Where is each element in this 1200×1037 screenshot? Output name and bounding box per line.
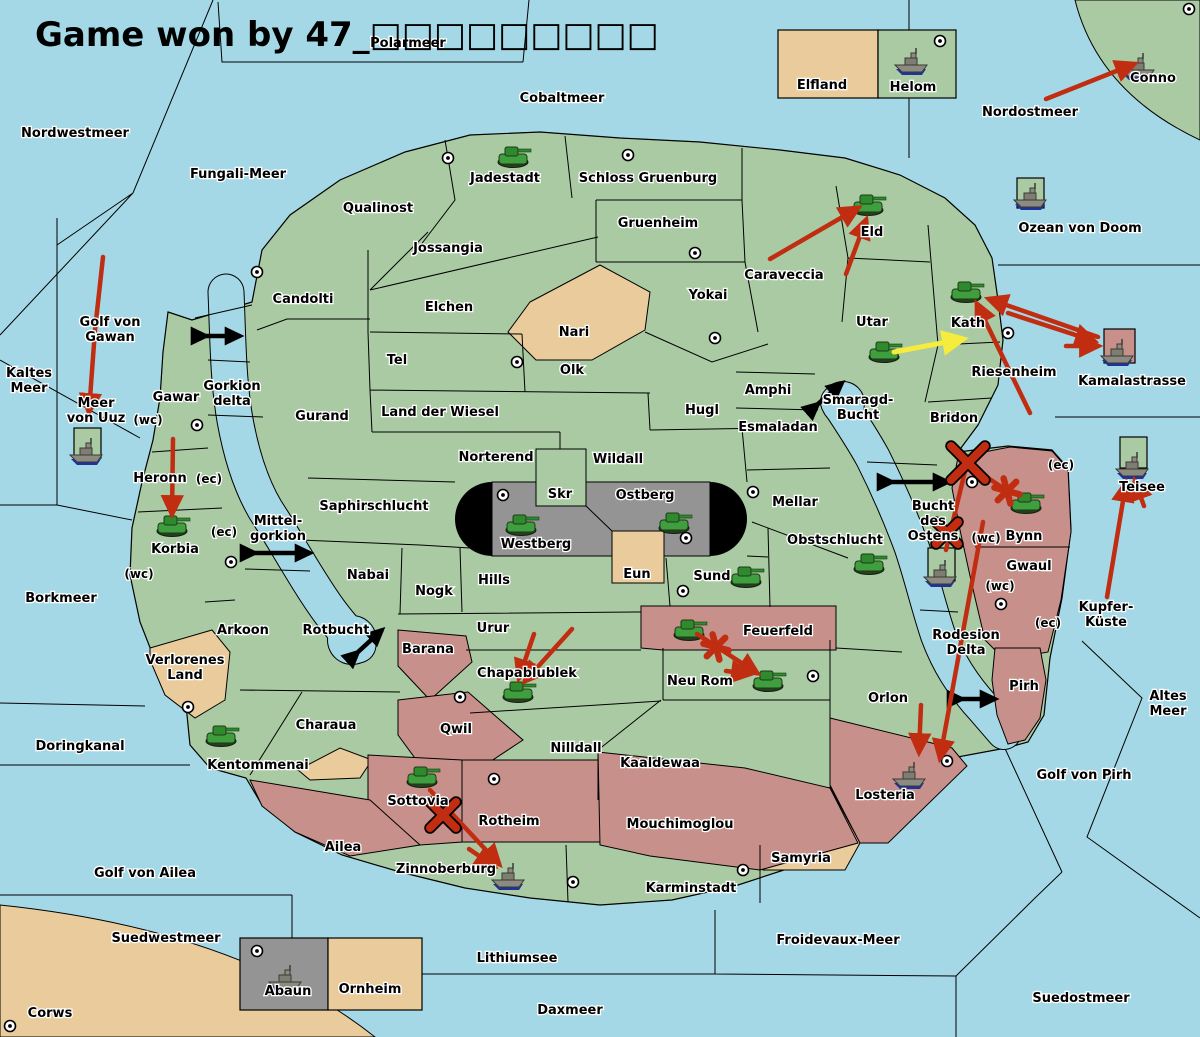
territory-rotheim	[462, 760, 600, 842]
map-title: Game won by 47_□□□□□□□□□	[35, 15, 659, 55]
sea-label-doringkanal: Doringkanal	[35, 739, 124, 754]
territory-label-neu-rom: Neu Rom	[667, 674, 733, 689]
territory-label-abaun: Abaun	[265, 984, 312, 999]
territory-label-elfland: Elfland	[797, 78, 847, 93]
territory-label-bridon: Bridon	[930, 411, 978, 426]
supply-center-dot	[999, 602, 1003, 606]
sea-label-teisee: Teisee	[1119, 480, 1165, 495]
territory-label-norterend: Norterend	[458, 450, 533, 465]
territory-label-caraveccia: Caraveccia	[744, 268, 823, 283]
supply-center-jadestadt	[443, 153, 454, 164]
territory-label-utar: Utar	[856, 315, 889, 330]
territory-label-yokai: Yokai	[687, 288, 727, 303]
territory-label-qwil: Qwil	[440, 722, 472, 737]
supply-center-dot	[811, 674, 815, 678]
supply-center-kath	[1003, 328, 1014, 339]
supply-center-conno	[1184, 4, 1195, 15]
territory-label-schloss-gruenburg: Schloss Gruenburg	[579, 171, 717, 186]
territory-label-ailea: Ailea	[325, 840, 362, 855]
territory-label-westberg: Westberg	[501, 537, 571, 552]
territory-label-korbia: Korbia	[151, 542, 199, 557]
territory-label-samyria: Samyria	[771, 851, 831, 866]
sea-label-golf-von-pirh: Golf von Pirh	[1036, 768, 1131, 783]
territory-label-zinnoberburg: Zinnoberburg	[396, 862, 496, 877]
territory-label-mellar: Mellar	[772, 495, 818, 510]
supply-center-dot	[970, 480, 974, 484]
supply-center-dot	[255, 270, 259, 274]
territory-label-barana: Barana	[402, 642, 454, 657]
supply-center-qwil	[455, 692, 466, 703]
territory-label-nogk: Nogk	[415, 584, 453, 599]
supply-center-dot	[751, 490, 755, 494]
sea-label-suedostmeer: Suedostmeer	[1032, 991, 1130, 1006]
sea-label-kamalastrasse: Kamalastrasse	[1078, 374, 1186, 389]
territory-label-charaua: Charaua	[296, 718, 357, 733]
supply-center-dot	[684, 536, 688, 540]
coast-label-korbia-ec: (ec)	[211, 525, 237, 539]
territory-label-nabai: Nabai	[347, 568, 389, 583]
territory-label-karminstadt: Karminstadt	[646, 881, 737, 896]
supply-center-candolti	[252, 267, 263, 278]
territory-label-gawar: Gawar	[153, 390, 200, 405]
territory-label-sottovia: Sottovia	[387, 794, 448, 809]
territory-label-riesenheim: Riesenheim	[971, 365, 1056, 380]
supply-center-rotheim	[489, 774, 500, 785]
territory-label-orlon: Orlon	[868, 691, 908, 706]
territory-label-nilldall: Nilldall	[550, 741, 601, 756]
coast-label-heronn-ec: (ec)	[196, 472, 222, 486]
coast-label-korbia-wc: (wc)	[124, 567, 153, 581]
territory-label-wildall: Wildall	[593, 452, 643, 467]
supply-center-gwaul	[996, 599, 1007, 610]
coast-label-bynn-wc: (wc)	[971, 531, 1000, 545]
territory-label-jossangia: Jossangia	[412, 241, 483, 256]
supply-center-dot	[446, 156, 450, 160]
sea-label-fungali-meer: Fungali-Meer	[190, 167, 287, 182]
supply-center-dot	[492, 777, 496, 781]
territory-label-rotheim: Rotheim	[478, 814, 539, 829]
supply-center-dot	[255, 949, 259, 953]
territory-label-chapablublek: Chapablublek	[477, 666, 577, 681]
supply-center-dot	[186, 705, 190, 709]
territory-label-gurand: Gurand	[295, 409, 349, 424]
territory-label-obstschlucht: Obstschlucht	[787, 533, 883, 548]
territory-label-bynn: Bynn	[1006, 529, 1043, 544]
diplomacy-map: PolarmeerCobaltmeerNordwestmeerFungali-M…	[0, 0, 1200, 1037]
supply-center-dot	[681, 589, 685, 593]
supply-center-zinnoberburg	[568, 877, 579, 888]
sea-label-suedwestmeer: Suedwestmeer	[111, 931, 221, 946]
territory-label-hugl: Hugl	[685, 403, 719, 418]
sea-label-rotbucht: Rotbucht	[303, 623, 370, 638]
territory-label-gwaul: Gwaul	[1006, 559, 1051, 574]
territory-label-urur: Urur	[477, 621, 510, 636]
territory-label-sund: Sund	[693, 569, 730, 584]
coast-label-gwaul-wc: (wc)	[985, 579, 1014, 593]
sea-label-cobaltmeer: Cobaltmeer	[520, 91, 605, 106]
supply-center-dot	[938, 39, 942, 43]
territory-label-conno: Conno	[1130, 71, 1176, 86]
supply-center-dot	[458, 695, 462, 699]
territory-label-land-der-wiesel: Land der Wiesel	[381, 405, 499, 420]
supply-center-neu-rom	[808, 671, 819, 682]
territory-label-esmaladan: Esmaladan	[738, 420, 818, 435]
territory-label-ostberg: Ostberg	[616, 488, 675, 503]
supply-center-dot	[741, 868, 745, 872]
territory-label-nari: Nari	[559, 325, 590, 340]
supply-center-dot	[1006, 331, 1010, 335]
supply-center-yokai	[710, 333, 721, 344]
territory-label-olk: Olk	[560, 363, 585, 378]
territory-label-skr: Skr	[548, 487, 573, 502]
territory-label-losteria: Losteria	[855, 788, 915, 803]
territory-label-gruenheim: Gruenheim	[618, 216, 698, 231]
supply-center-dot	[1187, 7, 1191, 11]
sea-label-lithiumsee: Lithiumsee	[477, 951, 558, 966]
territory-label-helom: Helom	[890, 80, 937, 95]
territory-label-ornheim: Ornheim	[339, 982, 402, 997]
sea-label-golf-von-ailea: Golf von Ailea	[94, 866, 196, 881]
supply-center-abaun	[252, 946, 263, 957]
territory-label-feuerfeld: Feuerfeld	[743, 624, 813, 639]
supply-center-losteria	[942, 756, 953, 767]
sea-label-kupfer-kueste: Kupfer-Küste	[1079, 600, 1134, 630]
coast-label-bynn-ec: (ec)	[1048, 458, 1074, 472]
territory-label-pirh: Pirh	[1009, 679, 1039, 694]
supply-center-westberg	[498, 490, 509, 501]
territory-label-hills: Hills	[478, 573, 510, 588]
supply-center-dot	[693, 251, 697, 255]
supply-center-schloss-gruenburg	[623, 150, 634, 161]
supply-center-dot	[8, 1024, 12, 1028]
territory-label-amphi: Amphi	[745, 383, 792, 398]
territory-label-eld: Eld	[861, 225, 884, 240]
game-map-stage: PolarmeerCobaltmeerNordwestmeerFungali-M…	[0, 0, 1200, 1037]
supply-center-gawar	[192, 420, 203, 431]
supply-center-dot	[229, 560, 233, 564]
territory-ornheim	[328, 938, 422, 1010]
territory-label-candolti: Candolti	[273, 292, 334, 307]
supply-center-sund	[678, 586, 689, 597]
supply-center-ostberg	[681, 533, 692, 544]
territory-label-mouchimoglou: Mouchimoglou	[627, 817, 734, 832]
supply-center-helom	[935, 36, 946, 47]
territory-label-tel: Tel	[387, 353, 407, 368]
sea-label-nordwestmeer: Nordwestmeer	[21, 126, 129, 141]
territory-label-heronn: Heronn	[133, 471, 187, 486]
supply-center-gruenheim	[690, 248, 701, 259]
supply-center-dot	[515, 360, 519, 364]
supply-center-corws	[5, 1021, 16, 1032]
sea-label-kaltes-meer: KaltesMeer	[6, 366, 52, 396]
territory-label-kath: Kath	[951, 316, 985, 331]
sea-label-borkmeer: Borkmeer	[25, 591, 97, 606]
supply-center-dot	[713, 336, 717, 340]
sea-label-golf-von-gawan: Golf vonGawan	[80, 315, 141, 345]
territory-label-kaaldewaa: Kaaldewaa	[620, 756, 700, 771]
sea-label-ozean-von-doom: Ozean von Doom	[1018, 221, 1141, 236]
sea-label-froidevaux-meer: Froidevaux-Meer	[776, 933, 900, 948]
supply-center-dot	[571, 880, 575, 884]
coast-label-gwaul-ec: (ec)	[1035, 616, 1061, 630]
territory-label-kentommenai: Kentommenai	[207, 758, 308, 773]
supply-center-korbia	[226, 557, 237, 568]
sea-label-corws: Corws	[28, 1006, 73, 1021]
sea-label-daxmeer: Daxmeer	[537, 1003, 603, 1018]
supply-center-karminstadt	[738, 865, 749, 876]
territory-label-eun: Eun	[623, 567, 650, 582]
supply-center-mellar	[748, 487, 759, 498]
territory-label-qualinost: Qualinost	[343, 201, 413, 216]
supply-center-tel	[512, 357, 523, 368]
coast-label-gawar-wc: (wc)	[133, 413, 162, 427]
territory-label-elchen: Elchen	[425, 300, 473, 315]
supply-center-dot	[501, 493, 505, 497]
supply-center-verlorenes-land	[183, 702, 194, 713]
supply-center-dot	[626, 153, 630, 157]
territory-label-jadestadt: Jadestadt	[469, 171, 540, 186]
sea-label-mittel-gorkion: Mittel-gorkion	[250, 514, 306, 544]
territory-label-saphirschlucht: Saphirschlucht	[319, 499, 428, 514]
sea-label-altes-meer: AltesMeer	[1149, 689, 1187, 719]
territory-label-arkoon: Arkoon	[217, 623, 269, 638]
move-arrow-to-losteria-b	[919, 705, 921, 752]
supply-center-dot	[195, 423, 199, 427]
sea-label-nordostmeer: Nordostmeer	[982, 105, 1079, 120]
supply-center-dot	[945, 759, 949, 763]
